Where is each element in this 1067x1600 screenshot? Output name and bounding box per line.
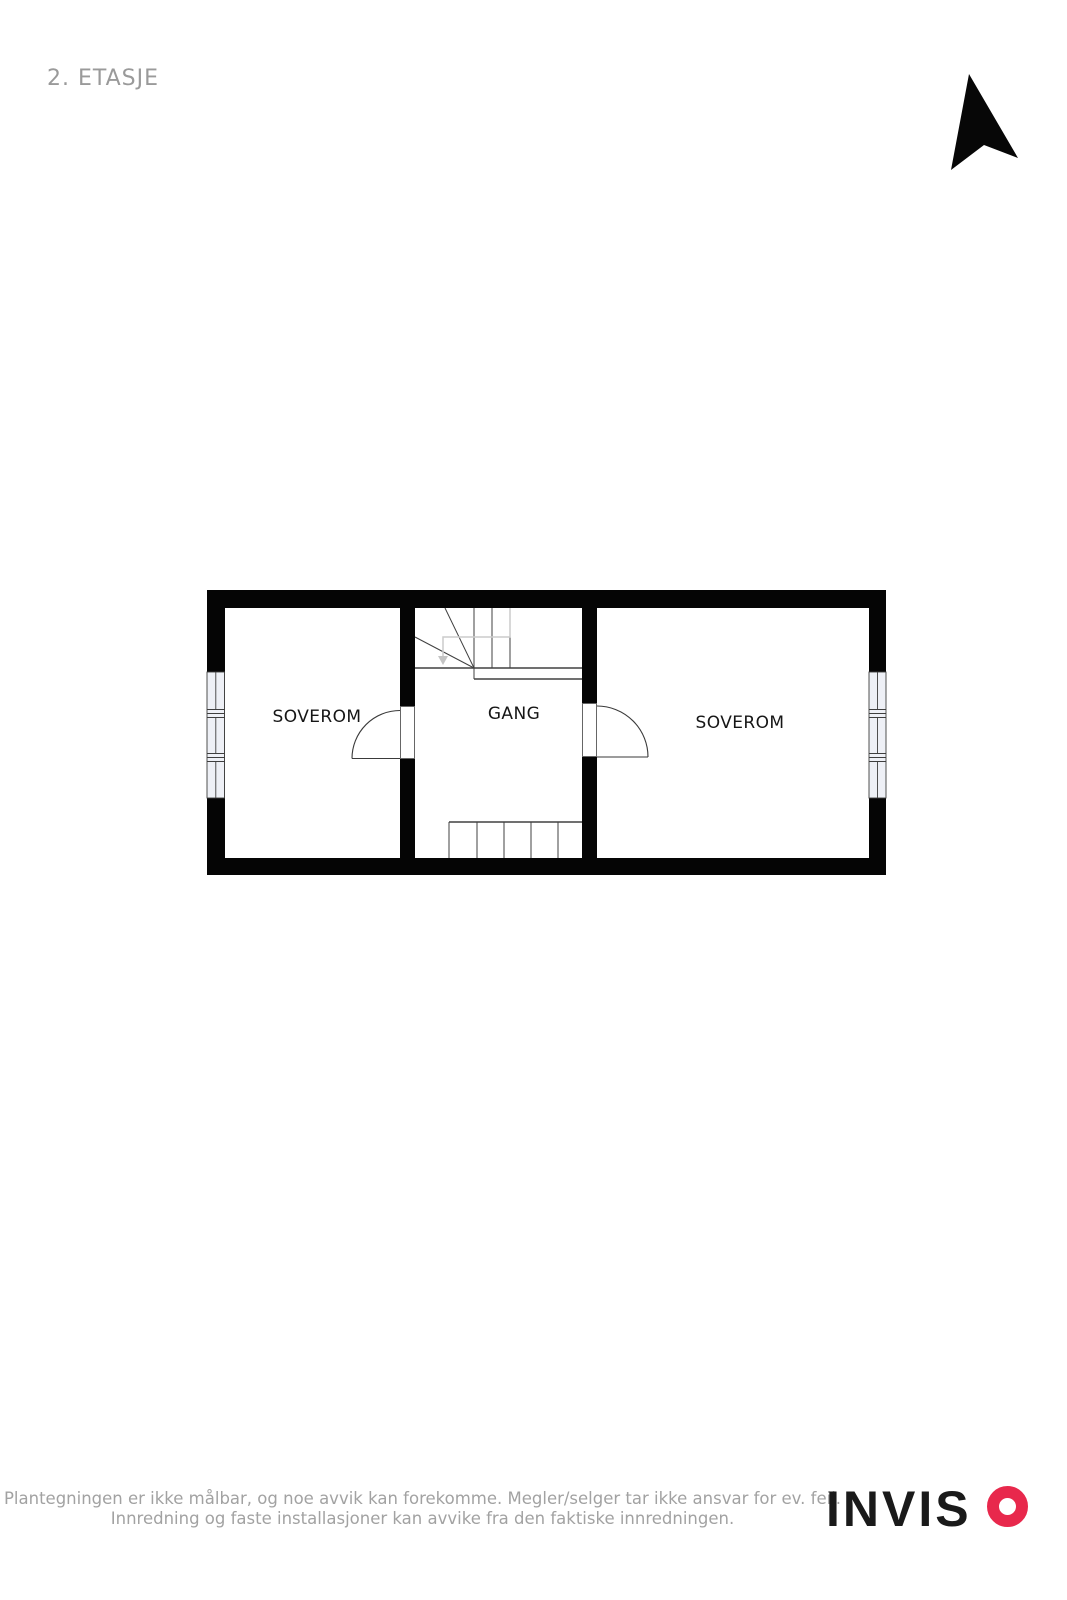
wall-bottom xyxy=(207,858,886,875)
door-opening xyxy=(583,704,597,757)
disclaimer-line2: Innredning og faste installasjoner kan a… xyxy=(0,1509,845,1529)
disclaimer: Plantegningen er ikke målbar, og noe avv… xyxy=(0,1489,845,1529)
room-label-soverom-left: SOVEROM xyxy=(273,707,362,727)
room-label-soverom-right: SOVEROM xyxy=(696,713,785,733)
logo-o-icon xyxy=(986,1485,1030,1529)
stairs-upper xyxy=(415,608,582,679)
floor-plan: SOVEROM GANG SOVEROM xyxy=(190,575,900,890)
stairs-lower xyxy=(449,822,582,858)
door-opening xyxy=(401,707,415,759)
door-right xyxy=(583,704,649,758)
wall-top xyxy=(207,590,886,608)
north-arrow-icon xyxy=(930,60,1030,180)
window-left xyxy=(207,672,225,798)
walk-line-arrow-icon xyxy=(438,656,448,665)
wall-divider-right-lower xyxy=(582,757,597,860)
winder-line xyxy=(445,608,474,668)
wall-divider-right-upper xyxy=(582,607,597,703)
north-arrow-shape xyxy=(951,74,1018,170)
room-label-gang: GANG xyxy=(488,704,540,724)
inviso-logo: INVIS xyxy=(826,1484,1036,1532)
window-right xyxy=(869,672,886,798)
door-swing-arc xyxy=(597,706,648,757)
wall-divider-left-lower xyxy=(400,759,415,860)
disclaimer-line1: Plantegningen er ikke målbar, og noe avv… xyxy=(0,1489,845,1509)
page-title: 2. ETASJE xyxy=(47,66,159,91)
wall-divider-left-upper xyxy=(400,607,415,706)
logo-o-ring xyxy=(993,1492,1022,1521)
logo-text: INVIS xyxy=(826,1484,972,1534)
footer: Plantegningen er ikke målbar, og noe avv… xyxy=(0,1483,1067,1553)
winder-line xyxy=(415,637,474,668)
